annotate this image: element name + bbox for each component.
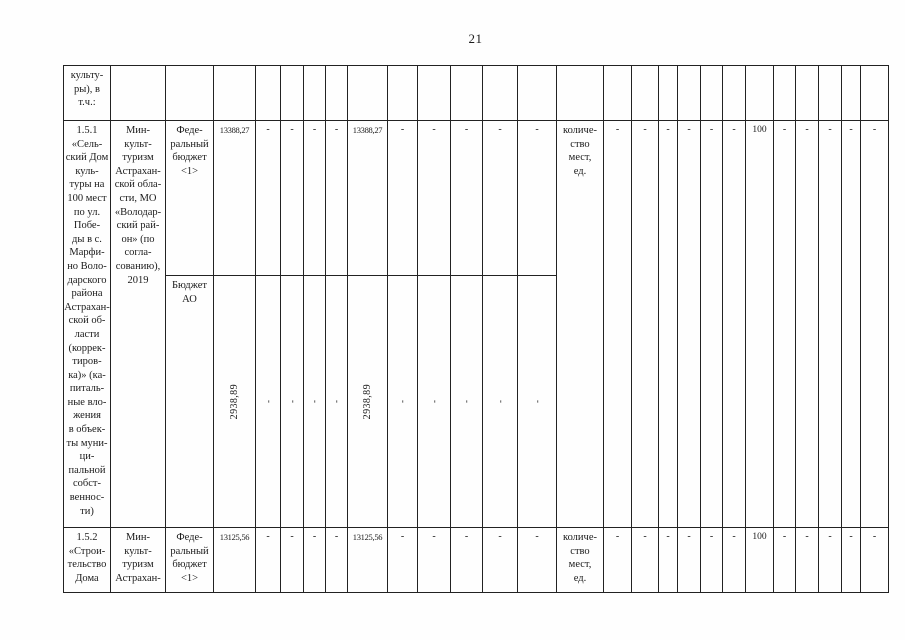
cell-text: - <box>687 124 690 135</box>
cell-project-1-5-1-name: 1.5.1 «Сель- ский Дом куль- туры на 100 … <box>64 121 111 528</box>
cell-text: 13388,27 <box>353 125 382 135</box>
cell-amount-total-federal: 13125,56 <box>214 528 256 593</box>
cell-text: - <box>266 124 269 135</box>
cell-text: - <box>535 124 538 135</box>
cell-amount-dash: - <box>281 276 304 528</box>
program-table: культу- ры), в т.ч.:1.5.1 «Сель- ский До… <box>63 65 889 593</box>
cell-amount-dash: - <box>304 276 326 528</box>
empty-cell <box>632 66 659 121</box>
cell-indicator-dash: - <box>701 528 723 593</box>
empty-cell <box>604 66 632 121</box>
cell-amount-dash: - <box>518 528 557 593</box>
cell-text: - <box>287 400 298 403</box>
cell-amount-dash: - <box>518 121 557 276</box>
empty-cell <box>678 66 701 121</box>
empty-cell <box>659 66 678 121</box>
cell-text: количе- ство мест, ед. <box>563 125 597 177</box>
empty-cell <box>348 66 388 121</box>
cell-amount-dash: - <box>418 528 451 593</box>
cell-project-1-5-1-executor: Мин- культ- туризм Астрахан- ской обла- … <box>111 121 166 528</box>
cell-text: - <box>783 124 786 135</box>
cell-text: Феде- ральный бюджет <1> <box>170 125 208 177</box>
cell-text: Бюджет АО <box>172 280 207 305</box>
cell-amount-dash: - <box>388 276 418 528</box>
cell-text: 100 <box>752 532 766 542</box>
cell-text: 1.5.1 «Сель- ский Дом куль- туры на 100 … <box>64 125 110 517</box>
cell-amount-dash: - <box>388 121 418 276</box>
cell-text: - <box>498 531 501 542</box>
cell-text: - <box>532 400 543 403</box>
cell-amount-total-regional: 2938,89 <box>214 276 256 528</box>
cell-indicator-dash: - <box>723 528 746 593</box>
cell-text: - <box>432 531 435 542</box>
cell-text: - <box>616 531 619 542</box>
cell-text: - <box>666 124 669 135</box>
cell-amount-dash: - <box>256 121 281 276</box>
empty-cell <box>819 66 842 121</box>
empty-cell <box>796 66 819 121</box>
cell-budget-federal-1-5-2: Феде- ральный бюджет <1> <box>166 528 214 593</box>
cell-continued-category: культу- ры), в т.ч.: <box>64 66 111 121</box>
cell-indicator-dash: - <box>632 528 659 593</box>
empty-cell <box>842 66 861 121</box>
cell-text: 100 <box>752 125 766 135</box>
cell-text: 13125,56 <box>353 532 382 542</box>
cell-indicator-value-1-5-2: 100 <box>746 528 774 593</box>
cell-amount-dash: - <box>418 121 451 276</box>
cell-text: - <box>710 531 713 542</box>
cell-text: - <box>805 531 808 542</box>
cell-text: 2938,89 <box>230 384 240 419</box>
cell-text: - <box>732 531 735 542</box>
empty-cell <box>518 66 557 121</box>
cell-text: - <box>616 124 619 135</box>
cell-text: Мин- культ- туризм Астрахан- ской обла- … <box>115 125 161 286</box>
cell-text: 2938,89 <box>363 384 373 419</box>
cell-text: - <box>290 124 293 135</box>
cell-indicator-dash: - <box>796 121 819 528</box>
page-number: 21 <box>63 31 888 47</box>
cell-indicator-dash: - <box>774 528 796 593</box>
cell-amount-dash: - <box>326 528 348 593</box>
empty-cell <box>326 66 348 121</box>
cell-text: - <box>732 124 735 135</box>
cell-text: - <box>643 124 646 135</box>
cell-text: - <box>710 124 713 135</box>
cell-text: - <box>432 124 435 135</box>
cell-indicator-name-1-5-1: количе- ство мест, ед. <box>557 121 604 528</box>
cell-amount-dash: - <box>483 276 518 528</box>
cell-budget-federal-1-5-1: Феде- ральный бюджет <1> <box>166 121 214 276</box>
empty-cell <box>166 66 214 121</box>
empty-cell <box>483 66 518 121</box>
cell-amount-dash: - <box>256 528 281 593</box>
cell-indicator-dash: - <box>604 528 632 593</box>
cell-amount-dash: - <box>483 121 518 276</box>
empty-cell <box>451 66 483 121</box>
cell-text: - <box>805 124 808 135</box>
cell-indicator-value-1-5-1: 100 <box>746 121 774 528</box>
cell-amount-dash: - <box>483 528 518 593</box>
empty-cell <box>418 66 451 121</box>
empty-cell <box>557 66 604 121</box>
document-page: 21 культу- ры), в т.ч.:1.5.1 «Сель- ский… <box>0 0 905 640</box>
cell-indicator-dash: - <box>659 121 678 528</box>
cell-indicator-dash: - <box>842 528 861 593</box>
cell-indicator-dash: - <box>842 121 861 528</box>
cell-amount-year-federal: 13125,56 <box>348 528 388 593</box>
cell-project-1-5-2-name: 1.5.2 «Строи- тельство Дома <box>64 528 111 593</box>
cell-text: - <box>873 531 876 542</box>
empty-cell <box>111 66 166 121</box>
cell-text: Феде- ральный бюджет <1> <box>170 532 208 584</box>
cell-text: - <box>263 400 274 403</box>
empty-cell <box>388 66 418 121</box>
cell-amount-dash: - <box>388 528 418 593</box>
cell-indicator-dash: - <box>678 121 701 528</box>
empty-cell <box>304 66 326 121</box>
cell-text: - <box>849 531 852 542</box>
cell-text: - <box>335 124 338 135</box>
cell-text: - <box>849 124 852 135</box>
cell-text: - <box>666 531 669 542</box>
cell-text: - <box>783 531 786 542</box>
cell-text: - <box>643 531 646 542</box>
cell-text: культу- ры), в т.ч.: <box>71 70 104 108</box>
cell-indicator-dash: - <box>796 528 819 593</box>
cell-amount-dash: - <box>451 121 483 276</box>
cell-amount-dash: - <box>304 528 326 593</box>
cell-amount-dash: - <box>451 528 483 593</box>
cell-indicator-dash: - <box>819 528 842 593</box>
cell-indicator-dash: - <box>774 121 796 528</box>
cell-text: - <box>309 400 320 403</box>
cell-budget-regional-1-5-1: Бюджет АО <box>166 276 214 528</box>
cell-indicator-dash: - <box>723 121 746 528</box>
cell-indicator-dash: - <box>819 121 842 528</box>
cell-project-1-5-2-executor: Мин- культ- туризм Астрахан- <box>111 528 166 593</box>
cell-text: - <box>535 531 538 542</box>
cell-amount-dash: - <box>304 121 326 276</box>
cell-amount-dash: - <box>256 276 281 528</box>
empty-cell <box>746 66 774 121</box>
empty-cell <box>723 66 746 121</box>
empty-cell <box>256 66 281 121</box>
empty-cell <box>861 66 889 121</box>
cell-text: - <box>313 124 316 135</box>
empty-cell <box>774 66 796 121</box>
cell-indicator-name-1-5-2: количе- ство мест, ед. <box>557 528 604 593</box>
cell-amount-dash: - <box>418 276 451 528</box>
cell-text: - <box>290 531 293 542</box>
cell-text: - <box>401 531 404 542</box>
cell-amount-dash: - <box>451 276 483 528</box>
cell-amount-year-regional: 2938,89 <box>348 276 388 528</box>
cell-amount-dash: - <box>326 121 348 276</box>
cell-indicator-dash: - <box>861 121 889 528</box>
empty-cell <box>701 66 723 121</box>
cell-indicator-dash: - <box>604 121 632 528</box>
cell-amount-dash: - <box>281 528 304 593</box>
cell-text: - <box>397 400 408 403</box>
cell-text: - <box>498 124 501 135</box>
cell-text: - <box>461 400 472 403</box>
cell-text: 13125,56 <box>220 532 249 542</box>
cell-amount-dash: - <box>518 276 557 528</box>
cell-indicator-dash: - <box>632 121 659 528</box>
cell-text: количе- ство мест, ед. <box>563 532 597 584</box>
cell-text: - <box>429 400 440 403</box>
cell-text: - <box>331 400 342 403</box>
cell-indicator-dash: - <box>659 528 678 593</box>
cell-text: 13388,27 <box>220 125 249 135</box>
cell-amount-year-federal: 13388,27 <box>348 121 388 276</box>
cell-amount-total-federal: 13388,27 <box>214 121 256 276</box>
cell-text: - <box>465 531 468 542</box>
cell-text: - <box>401 124 404 135</box>
cell-indicator-dash: - <box>701 121 723 528</box>
cell-text: - <box>266 531 269 542</box>
cell-text: - <box>873 124 876 135</box>
empty-cell <box>214 66 256 121</box>
cell-amount-dash: - <box>281 121 304 276</box>
cell-text: - <box>335 531 338 542</box>
cell-indicator-dash: - <box>861 528 889 593</box>
cell-text: - <box>828 124 831 135</box>
cell-text: Мин- культ- туризм Астрахан- <box>115 532 161 584</box>
cell-amount-dash: - <box>326 276 348 528</box>
cell-text: - <box>495 400 506 403</box>
empty-cell <box>281 66 304 121</box>
cell-text: - <box>465 124 468 135</box>
cell-text: 1.5.2 «Строи- тельство Дома <box>68 532 107 584</box>
cell-indicator-dash: - <box>678 528 701 593</box>
cell-text: - <box>687 531 690 542</box>
cell-text: - <box>828 531 831 542</box>
cell-text: - <box>313 531 316 542</box>
